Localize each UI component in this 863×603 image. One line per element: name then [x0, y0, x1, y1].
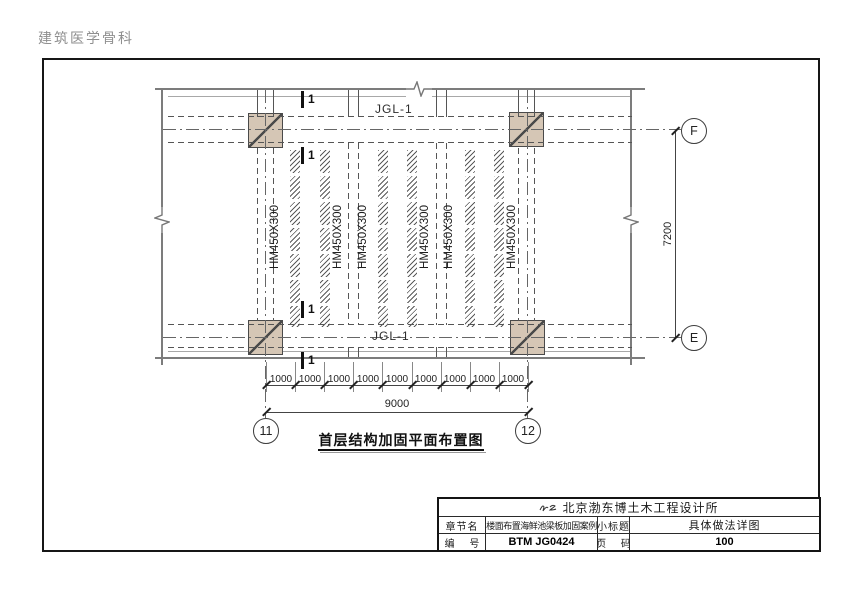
chapter-value: 楼面布置海鲜池梁板加固案例: [486, 517, 598, 534]
section-cut-label: 1: [308, 92, 315, 106]
existing-beam-edge: [436, 347, 437, 357]
section-cut-mark: [301, 147, 304, 164]
dimension-value-1000: 1000: [469, 374, 499, 385]
grid-bubble-e: E: [681, 325, 707, 351]
slab-line-top-inner: [168, 96, 632, 97]
existing-beam-edge: [348, 347, 349, 357]
section-cut-mark: [301, 352, 304, 369]
existing-beam-edge: [273, 90, 274, 117]
existing-beam-hidden: [257, 148, 258, 321]
dimension-value-1000: 1000: [382, 374, 412, 385]
reinforcement-beam-hatch: [320, 150, 330, 327]
dimension-line-segments: [266, 385, 528, 386]
reinforcement-beam-label: HM450X300: [269, 197, 283, 277]
existing-beam-hidden: [436, 143, 437, 325]
break-symbol-icon: [154, 207, 170, 233]
reinforcement-beam-hatch: [378, 150, 388, 327]
dimension-value-1000: 1000: [498, 374, 528, 385]
company-name: 北京渤东博土木工程设计所: [562, 499, 718, 516]
existing-beam-edge: [436, 90, 437, 117]
break-symbol-icon: [406, 81, 432, 97]
title-block-grid: 章节名 楼面布置海鲜池梁板加固案例 小标题 具体做法详图 编 号 BTM JG0…: [439, 517, 819, 550]
title-block-company-row: 北京渤东博土木工程设计所: [439, 499, 819, 517]
grid-bubble-f: F: [681, 118, 707, 144]
reinforcement-beam-hatch: [290, 150, 300, 327]
beam-hidden-line: [168, 116, 632, 117]
slab-edge-top: [155, 88, 645, 90]
existing-beam-edge: [446, 90, 447, 117]
existing-beam-edge: [358, 90, 359, 117]
beam-label-bottom: JGL-1: [372, 329, 410, 343]
dimension-value-1000: 1000: [266, 374, 296, 385]
existing-beam-hidden: [534, 148, 535, 321]
reinforcement-beam-hatch: [407, 150, 417, 327]
existing-beam-edge: [534, 90, 535, 117]
beam-hidden-line: [168, 347, 632, 348]
page-value: 100: [630, 534, 819, 550]
existing-beam-hidden: [348, 143, 349, 325]
dimension-value-1000: 1000: [353, 374, 383, 385]
dimension-value-9000: 9000: [367, 398, 427, 410]
existing-beam-edge: [257, 90, 258, 117]
dimension-value-7200: 7200: [662, 204, 674, 264]
beam-hidden-line: [168, 142, 632, 143]
reinforcement-beam-label: HM450X300: [357, 197, 371, 277]
grid-line-F: [163, 129, 681, 130]
dimension-line-total: [266, 412, 528, 413]
section-cut-mark: [301, 301, 304, 318]
section-cut-label: 1: [308, 353, 315, 367]
dimension-extension-line: [528, 362, 529, 392]
reinforcement-beam-label: HM450X300: [419, 197, 433, 277]
dimension-value-1000: 1000: [411, 374, 441, 385]
reinforcement-beam-label: HM450X300: [506, 197, 520, 277]
existing-beam-edge: [446, 347, 447, 357]
header-watermark-text: 建筑医学骨科: [38, 28, 134, 48]
dimension-value-1000: 1000: [440, 374, 470, 385]
section-cut-label: 1: [308, 302, 315, 316]
slab-line-bottom-inner: [168, 351, 632, 352]
dimension-value-1000: 1000: [324, 374, 354, 385]
grid-bubble-12: 12: [515, 418, 541, 444]
reinforcement-beam-hatch: [494, 150, 504, 327]
slab-edge-bottom: [155, 357, 645, 359]
beam-label-top: JGL-1: [375, 102, 413, 116]
existing-beam-edge: [518, 90, 519, 117]
reinforcement-beam-hatch: [465, 150, 475, 327]
company-logo-icon: [539, 502, 557, 513]
dimension-value-1000: 1000: [295, 374, 325, 385]
grid-line-E: [163, 337, 681, 338]
chapter-label: 章节名: [439, 517, 486, 534]
title-underline: [318, 449, 484, 451]
page-label: 页 码: [598, 534, 630, 550]
beam-hidden-line: [168, 324, 632, 325]
section-cut-label: 1: [308, 148, 315, 162]
existing-beam-edge: [358, 347, 359, 357]
drawing-page: 建筑医学骨科 JGL-1 JGL-1 F E 7200 9000: [0, 0, 863, 603]
subtitle-value: 具体做法详图: [630, 517, 819, 534]
title-block: 北京渤东博土木工程设计所 章节名 楼面布置海鲜池梁板加固案例 小标题 具体做法详…: [437, 497, 821, 552]
subtitle-label: 小标题: [598, 517, 630, 534]
drawing-title: 首层结构加固平面布置图: [318, 430, 484, 450]
break-symbol-icon: [623, 207, 639, 233]
existing-beam-edge: [348, 90, 349, 117]
grid-bubble-11: 11: [253, 418, 279, 444]
code-label: 编 号: [439, 534, 486, 550]
reinforcement-beam-label: HM450X300: [443, 197, 457, 277]
title-underline-shadow: [320, 452, 486, 453]
code-value: BTM JG0424: [486, 534, 598, 550]
section-cut-mark: [301, 91, 304, 108]
dimension-line-vertical: [675, 131, 676, 338]
reinforcement-beam-label: HM450X300: [332, 197, 346, 277]
